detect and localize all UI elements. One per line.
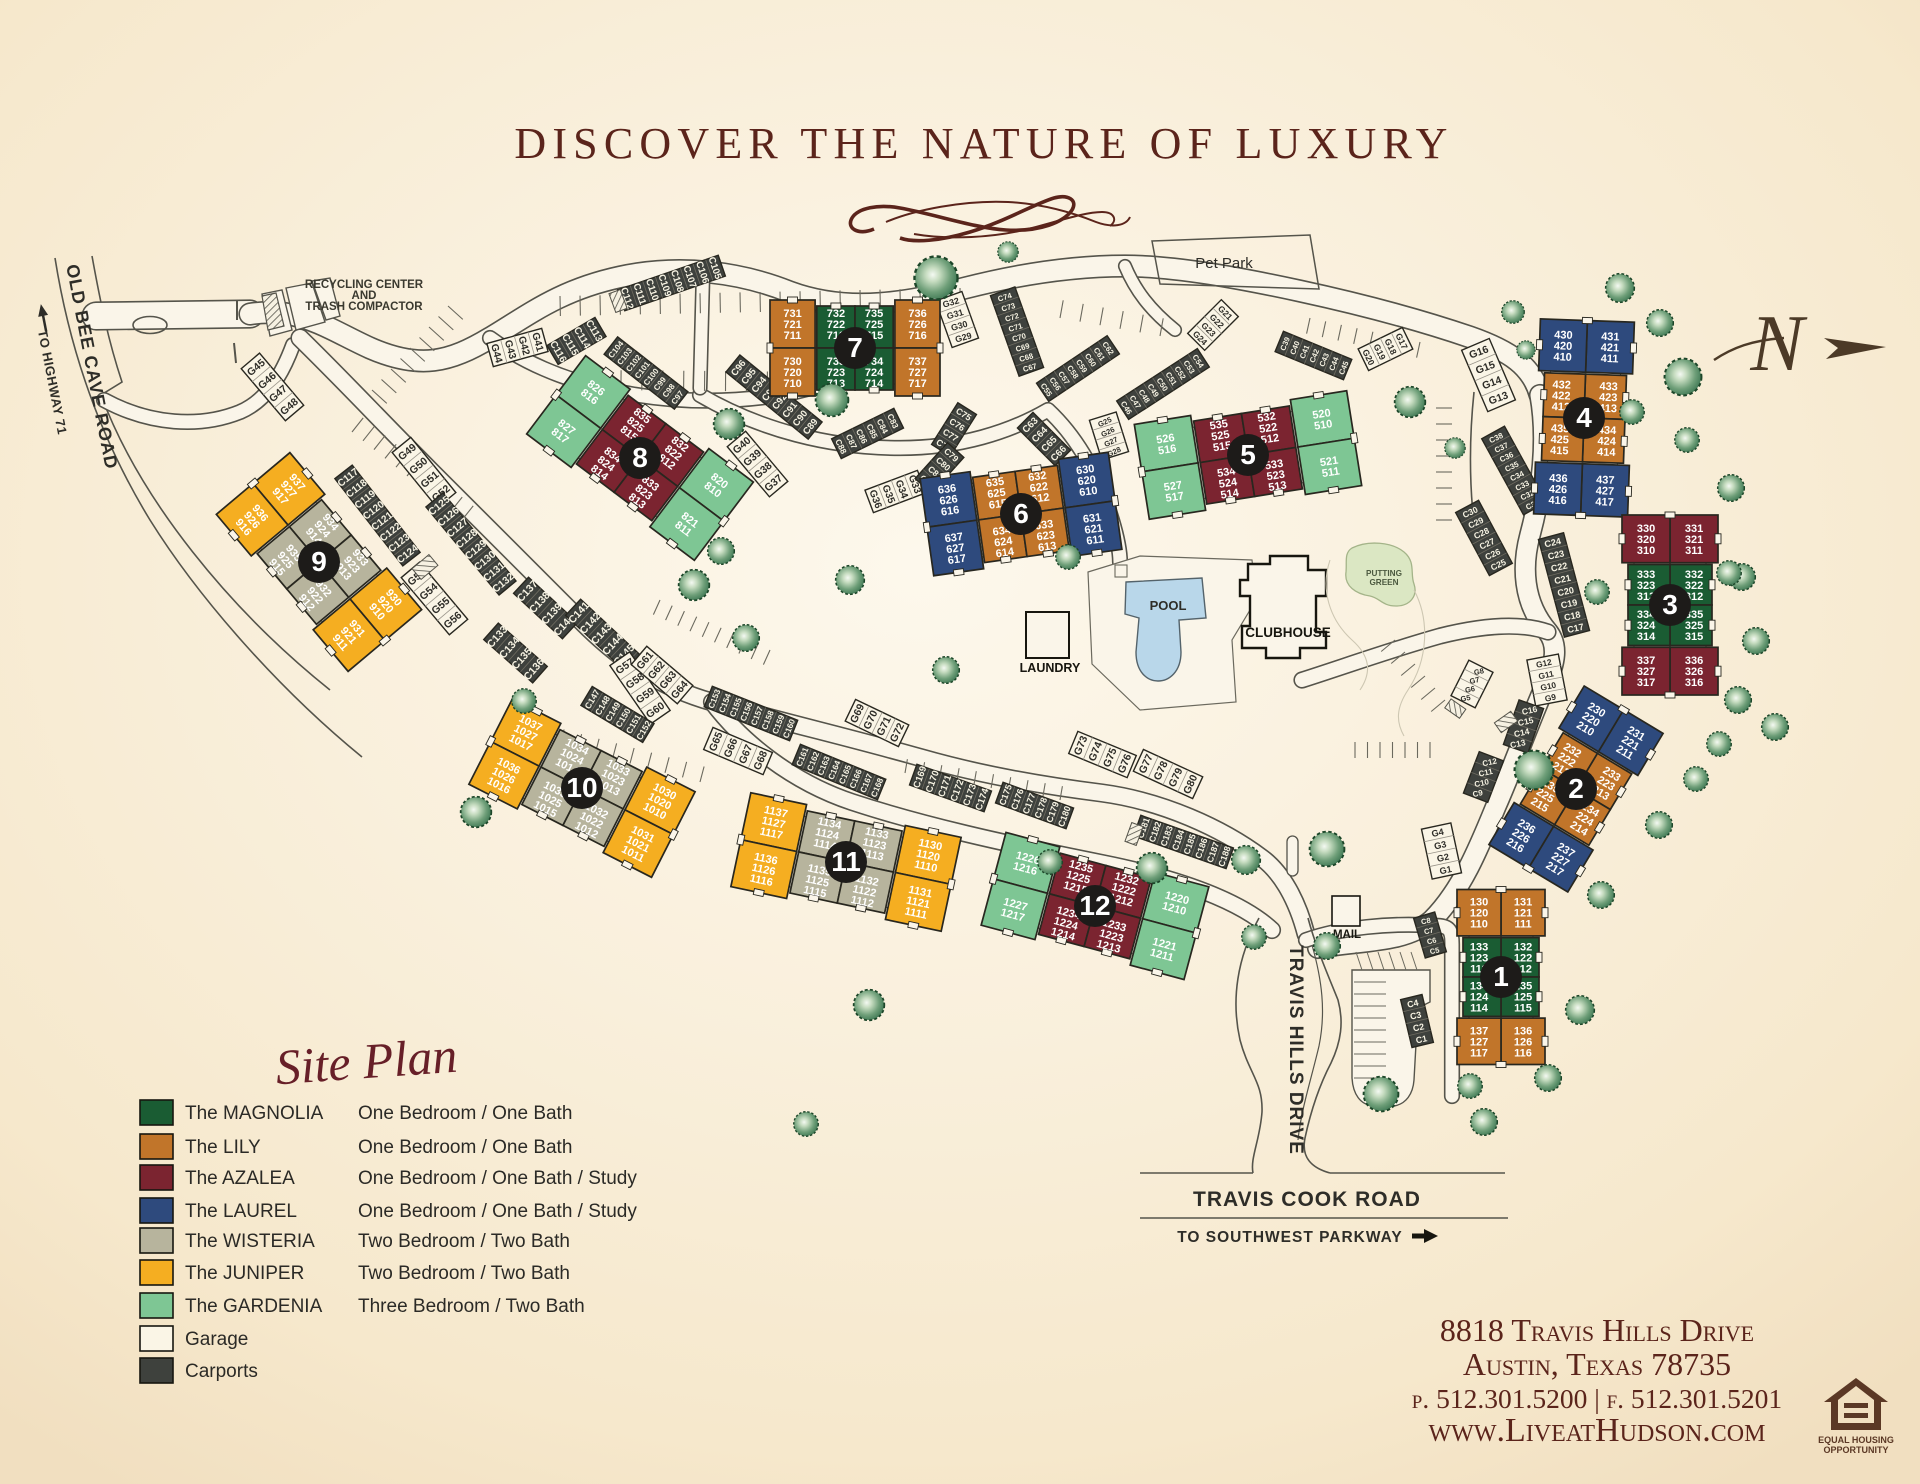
svg-text:TRASH COMPACTOR: TRASH COMPACTOR	[305, 301, 423, 313]
svg-text:One Bedroom / One Bath / Study: One Bedroom / One Bath / Study	[358, 1201, 637, 1222]
svg-text:GREEN: GREEN	[1369, 578, 1398, 587]
svg-text:One Bedroom / One Bath: One Bedroom / One Bath	[358, 1103, 572, 1124]
svg-text:11: 11	[831, 846, 861, 877]
svg-text:527517: 527517	[1163, 479, 1185, 505]
svg-text:p. 512.301.5200 | f. 512.301.5: p. 512.301.5200 | f. 512.301.5201	[1412, 1383, 1782, 1414]
svg-text:The WISTERIA: The WISTERIA	[185, 1231, 315, 1252]
svg-text:9: 9	[311, 546, 327, 577]
svg-text:436426416: 436426416	[1548, 473, 1568, 508]
svg-text:OPPORTUNITY: OPPORTUNITY	[1823, 1445, 1888, 1455]
svg-text:130120110: 130120110	[1470, 897, 1488, 931]
svg-text:6: 6	[1013, 498, 1029, 529]
svg-text:The AZALEA: The AZALEA	[185, 1168, 295, 1189]
svg-text:Two Bedroom / Two Bath: Two Bedroom / Two Bath	[358, 1263, 570, 1284]
svg-text:437427417: 437427417	[1595, 474, 1615, 509]
svg-text:1: 1	[1493, 961, 1509, 992]
svg-text:3: 3	[1662, 589, 1678, 620]
svg-text:EQUAL HOUSING: EQUAL HOUSING	[1818, 1435, 1894, 1445]
svg-text:520510: 520510	[1312, 407, 1334, 433]
svg-text:736726716: 736726716	[908, 308, 926, 342]
svg-text:5: 5	[1240, 439, 1256, 470]
svg-text:731721711: 731721711	[783, 308, 801, 342]
svg-text:330320310: 330320310	[1637, 523, 1655, 557]
svg-text:The GARDENIA: The GARDENIA	[185, 1296, 323, 1317]
svg-text:526516: 526516	[1156, 432, 1178, 458]
svg-text:430420410: 430420410	[1553, 329, 1573, 364]
svg-text:Three Bedroom / Two Bath: Three Bedroom / Two Bath	[358, 1296, 585, 1317]
svg-text:One Bedroom / One Bath: One Bedroom / One Bath	[358, 1137, 572, 1158]
svg-text:521511: 521511	[1319, 455, 1341, 481]
svg-text:The LILY: The LILY	[185, 1137, 261, 1158]
svg-text:TRAVIS HILLS DRIVE: TRAVIS HILLS DRIVE	[1285, 945, 1306, 1155]
svg-text:336326316: 336326316	[1685, 655, 1703, 689]
svg-text:Pet Park: Pet Park	[1195, 255, 1253, 272]
svg-text:12: 12	[1079, 890, 1110, 921]
svg-text:Garage: Garage	[185, 1329, 248, 1350]
svg-text:431421411: 431421411	[1600, 331, 1620, 366]
svg-text:337327317: 337327317	[1637, 655, 1655, 689]
svg-text:The MAGNOLIA: The MAGNOLIA	[185, 1103, 324, 1124]
svg-text:TRAVIS COOK ROAD: TRAVIS COOK ROAD	[1193, 1188, 1421, 1211]
svg-text:331321311: 331321311	[1685, 523, 1703, 557]
svg-text:One Bedroom / One Bath / Study: One Bedroom / One Bath / Study	[358, 1168, 637, 1189]
svg-text:TO SOUTHWEST PARKWAY: TO SOUTHWEST PARKWAY	[1177, 1229, 1403, 1246]
svg-text:The JUNIPER: The JUNIPER	[185, 1263, 304, 1284]
svg-text:The LAUREL: The LAUREL	[185, 1201, 297, 1222]
svg-text:Carports: Carports	[185, 1361, 258, 1382]
svg-text:POOL: POOL	[1150, 598, 1187, 613]
svg-text:2: 2	[1568, 773, 1584, 804]
svg-text:N: N	[1749, 300, 1808, 388]
svg-text:8: 8	[632, 442, 648, 473]
svg-text:131121111: 131121111	[1514, 897, 1532, 931]
svg-text:LAUNDRY: LAUNDRY	[1020, 661, 1081, 675]
svg-text:730720710: 730720710	[783, 356, 801, 390]
svg-text:PUTTING: PUTTING	[1366, 569, 1402, 578]
svg-text:8818 Travis Hills Drive: 8818 Travis Hills Drive	[1440, 1312, 1754, 1348]
svg-text:CLUBHOUSE: CLUBHOUSE	[1245, 625, 1331, 640]
svg-text:DISCOVER THE NATURE OF LUXURY: DISCOVER THE NATURE OF LUXURY	[514, 119, 1453, 168]
svg-text:10: 10	[566, 772, 597, 803]
svg-text:136126116: 136126116	[1514, 1025, 1532, 1059]
svg-text:www.LiveatHudson.com: www.LiveatHudson.com	[1429, 1412, 1766, 1449]
svg-text:Austin, Texas 78735: Austin, Texas 78735	[1463, 1346, 1731, 1382]
svg-text:7: 7	[847, 332, 863, 363]
svg-text:Two Bedroom / Two Bath: Two Bedroom / Two Bath	[358, 1231, 570, 1252]
svg-text:737727717: 737727717	[908, 356, 926, 390]
svg-text:4: 4	[1576, 402, 1592, 433]
svg-text:137127117: 137127117	[1470, 1025, 1488, 1059]
